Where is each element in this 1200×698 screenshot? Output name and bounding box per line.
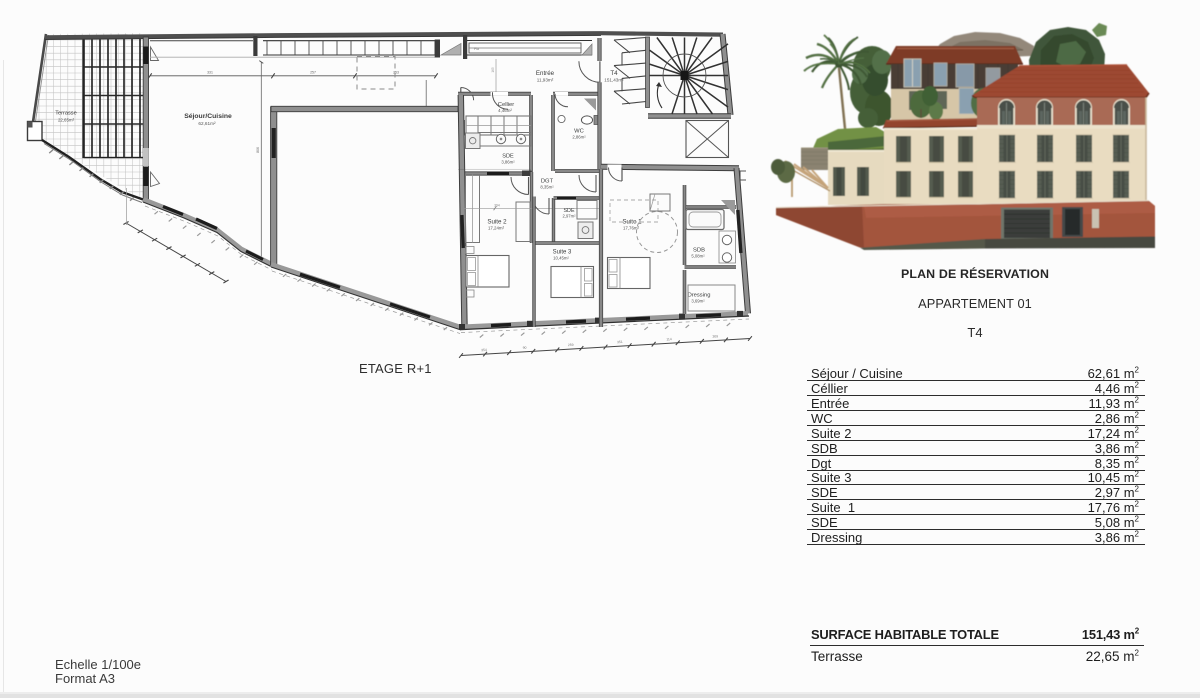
svg-text:394: 394 [494, 204, 500, 208]
svg-text:114: 114 [666, 337, 672, 341]
svg-text:5,08m²: 5,08m² [691, 254, 705, 259]
svg-text:2,86m²: 2,86m² [572, 135, 586, 140]
svg-text:11,93m²: 11,93m² [537, 78, 554, 83]
svg-text:Terrasse: Terrasse [55, 111, 76, 117]
svg-text:3,86m²: 3,86m² [501, 160, 515, 165]
svg-text:331: 331 [207, 71, 213, 75]
svg-text:17,24m²: 17,24m² [488, 226, 505, 231]
svg-text:257: 257 [310, 71, 316, 75]
svg-text:4,46m²: 4,46m² [498, 108, 512, 113]
svg-text:T4: T4 [610, 70, 618, 77]
svg-text:2,97m²: 2,97m² [562, 214, 576, 219]
svg-text:Pla: Pla [474, 47, 479, 51]
svg-text:Suite 1: Suite 1 [622, 219, 642, 226]
svg-text:62,61m²: 62,61m² [198, 121, 216, 126]
svg-text:Suite 2: Suite 2 [487, 219, 507, 226]
svg-text:8,35m²: 8,35m² [540, 185, 554, 190]
svg-text:806: 806 [256, 147, 260, 153]
svg-text:3,69m²: 3,69m² [691, 299, 705, 304]
svg-text:165: 165 [491, 67, 495, 73]
svg-text:354: 354 [481, 348, 487, 352]
svg-text:253: 253 [393, 71, 399, 75]
svg-text:309: 309 [712, 334, 718, 338]
svg-text:Séjour/Cuisine: Séjour/Cuisine [184, 113, 232, 120]
svg-text:259: 259 [568, 343, 574, 347]
svg-text:90: 90 [523, 346, 527, 350]
svg-text:151,43m²: 151,43m² [604, 78, 624, 83]
svg-text:10,45m²: 10,45m² [553, 256, 569, 261]
svg-text:Entrée: Entrée [536, 70, 555, 77]
svg-text:22,65m²: 22,65m² [58, 118, 75, 123]
svg-text:351: 351 [617, 340, 623, 344]
